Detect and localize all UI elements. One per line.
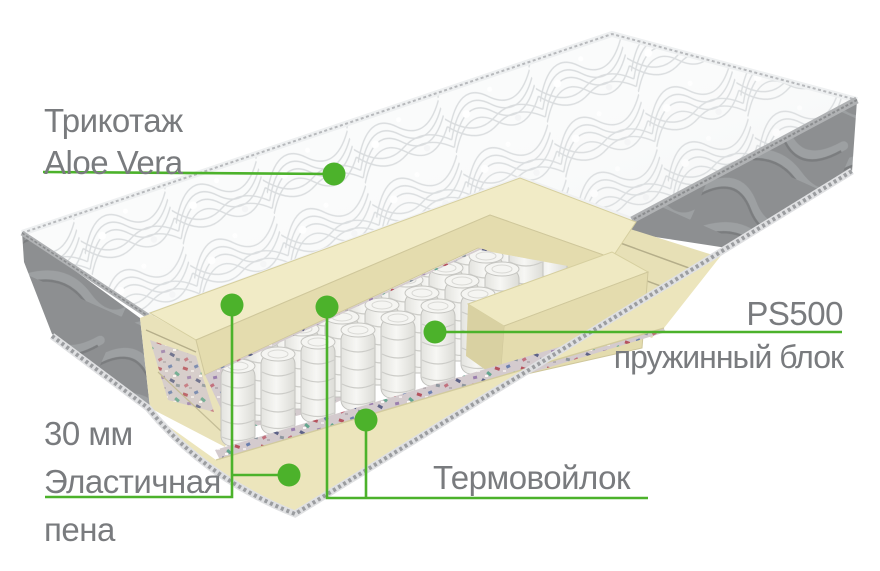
- mattress-diagram: Трикотаж Aloe Vera 30 мм Эластичная пена…: [0, 0, 880, 571]
- felt-bottom-marker-dot: [355, 409, 378, 432]
- fabric-marker-dot: [323, 163, 346, 186]
- springs-label: PS500 пружинный блок: [614, 294, 843, 377]
- foam-label: 30 мм Эластичная пена: [44, 410, 221, 554]
- springs-marker-dot: [424, 321, 447, 344]
- fabric-label-line-1: Трикотаж: [44, 100, 183, 142]
- foam-top-marker-dot: [221, 294, 244, 317]
- foam-label-line-2: Эластичная: [44, 458, 221, 506]
- springs-label-line-2: пружинный блок: [614, 337, 843, 377]
- foam-label-line-1: 30 мм: [44, 410, 221, 458]
- fabric-label-line-2: Aloe Vera: [44, 142, 183, 184]
- felt-label: Термовойлок: [433, 456, 630, 500]
- springs-label-line-1: PS500: [614, 294, 843, 334]
- foam-bottom-marker-dot: [278, 464, 301, 487]
- foam-label-line-3: пена: [44, 506, 221, 554]
- felt-top-marker-dot: [316, 296, 339, 319]
- felt-label-line-1: Термовойлок: [433, 456, 630, 500]
- fabric-label: Трикотаж Aloe Vera: [44, 100, 183, 184]
